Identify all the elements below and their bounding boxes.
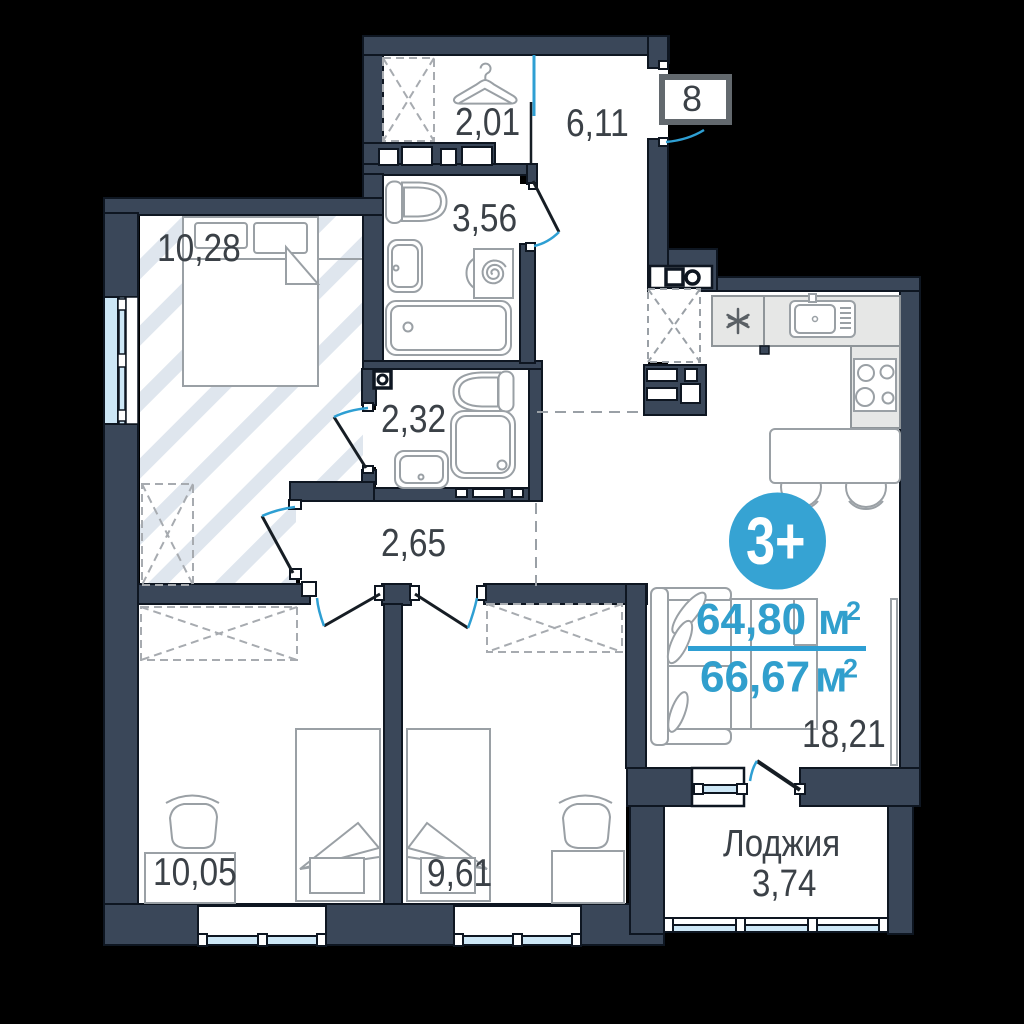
svg-text:9,61: 9,61 <box>427 851 492 895</box>
svg-text:6,11: 6,11 <box>566 101 629 145</box>
svg-text:10,28: 10,28 <box>157 226 241 270</box>
svg-text:Лоджия: Лоджия <box>723 822 840 865</box>
svg-text:10,05: 10,05 <box>153 850 237 894</box>
svg-text:8: 8 <box>682 78 702 119</box>
svg-text:66,67м2: 66,67м2 <box>700 653 858 702</box>
svg-text:18,21: 18,21 <box>802 712 886 756</box>
svg-text:2,65: 2,65 <box>381 521 446 565</box>
svg-text:3,74: 3,74 <box>752 862 816 905</box>
svg-text:3+: 3+ <box>746 504 806 579</box>
svg-text:2,01: 2,01 <box>455 100 520 144</box>
svg-text:64,80м2: 64,80м2 <box>696 595 861 644</box>
svg-text:3,56: 3,56 <box>452 196 517 240</box>
svg-text:2,32: 2,32 <box>381 397 446 441</box>
